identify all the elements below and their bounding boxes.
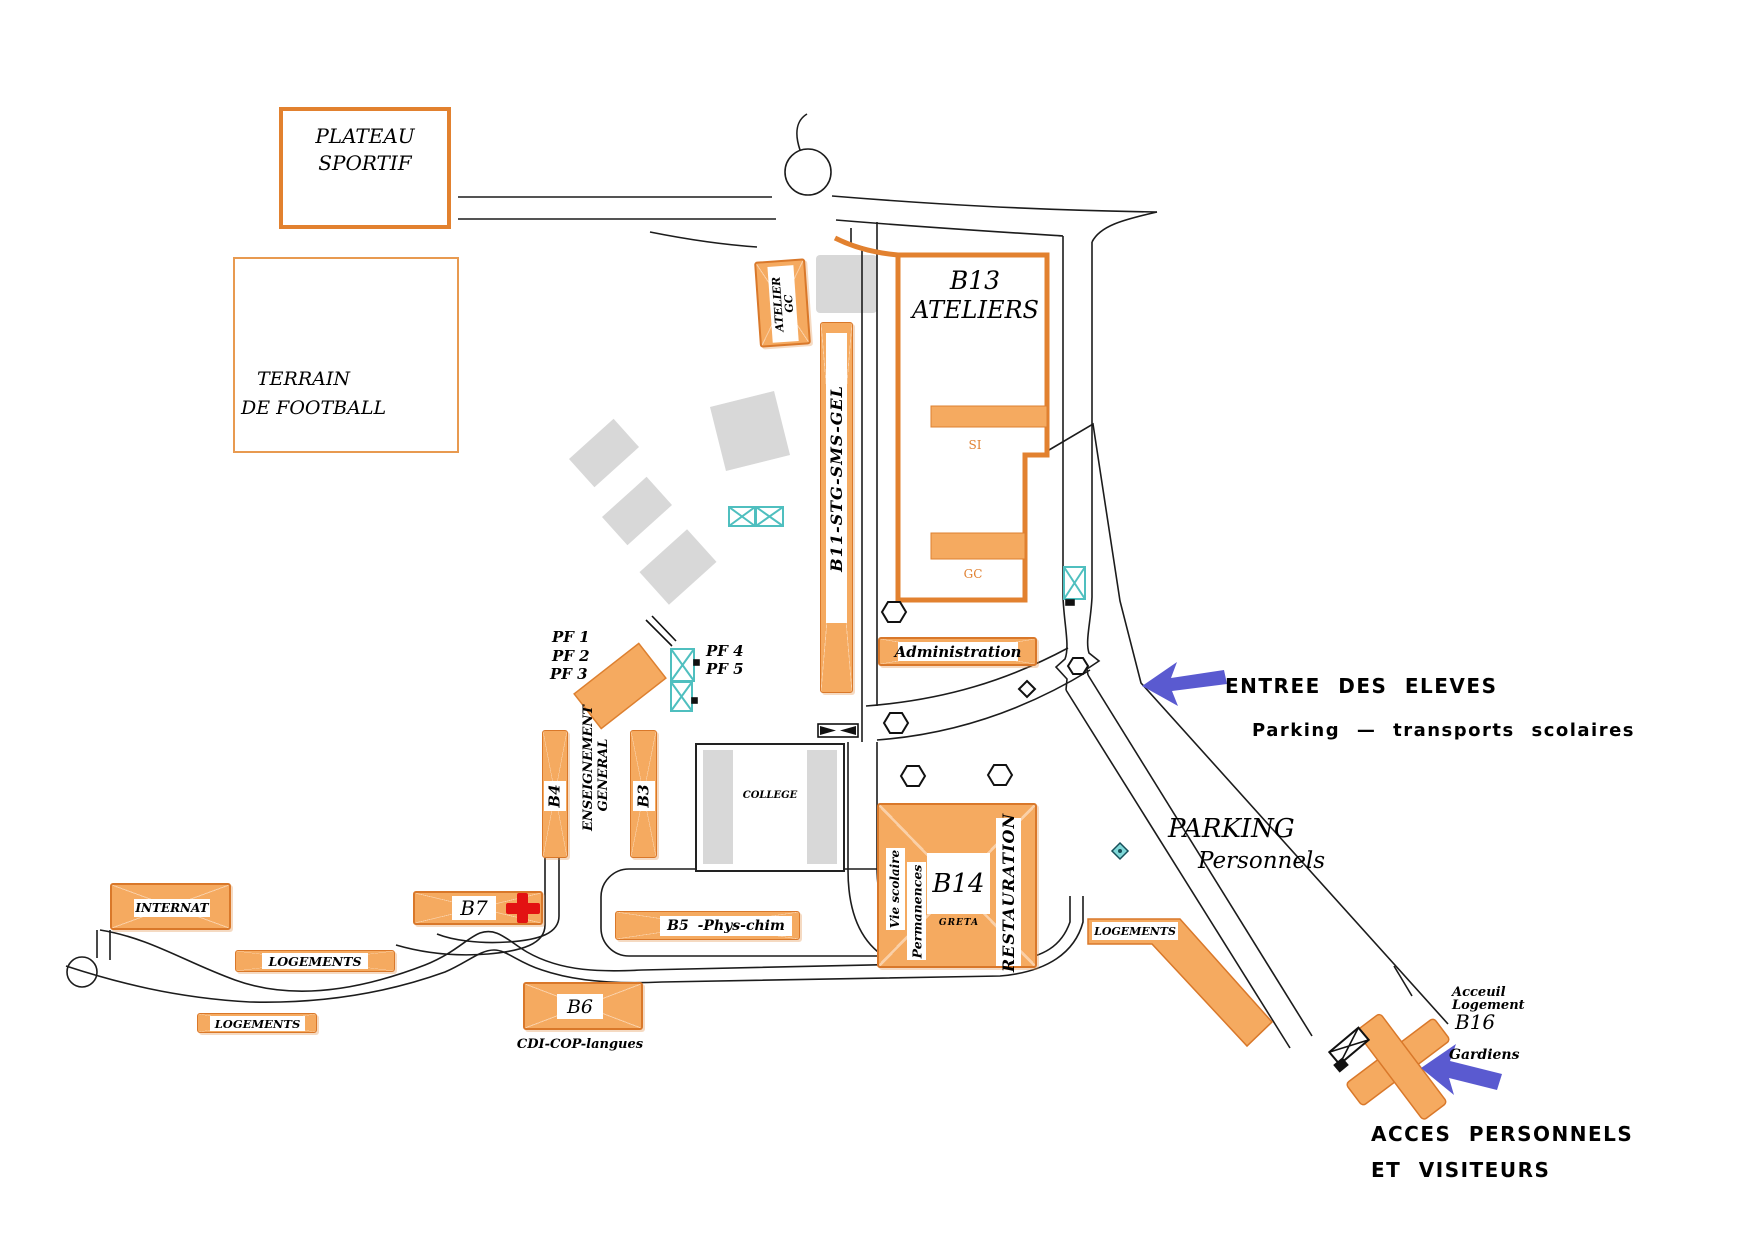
b16-label: B16 (1455, 1010, 1495, 1034)
college-wing-left (703, 750, 733, 864)
restauration-label: RESTAURATION (999, 812, 1018, 971)
administration-label: Administration (898, 642, 1018, 661)
terrain-football-zone: TERRAIN DE FOOTBALL (233, 257, 459, 453)
permanences-label: Permanences (909, 864, 924, 958)
pf5-label: PF 5 (706, 660, 744, 678)
plateau-sportif-label-1: PLATEAU (283, 123, 447, 150)
gate-icon-staff-entrance (1329, 1028, 1368, 1065)
students-entrance-label: ENTREE DES ELEVES (1225, 674, 1497, 698)
logements-west-1-label: LOGEMENTS (262, 953, 368, 969)
pf3-label: PF 3 (550, 665, 588, 683)
b13-type-label: ATELIERS (903, 296, 1048, 324)
first-aid-icon (506, 893, 540, 923)
logements-west-2-label: LOGEMENTS (210, 1016, 305, 1031)
diamond-marker-icon (1019, 681, 1035, 697)
roundabout (785, 149, 831, 195)
staff-entrance-label-2: ET VISITEURS (1371, 1158, 1550, 1182)
plateau-sportif-label-2: SPORTIF (283, 150, 447, 177)
parking-staff-label-2: Personnels (1198, 848, 1325, 874)
internat-building: INTERNAT (110, 883, 231, 930)
parking-staff-label-1: PARKING (1168, 814, 1295, 844)
logements-west-1-building: LOGEMENTS (235, 950, 395, 972)
b5-building: B5 -Phys-chim (615, 911, 800, 940)
greta-label: GRETA (931, 918, 987, 928)
college-label: COLLEGE (734, 790, 806, 801)
terrain-football-label-1: TERRAIN (241, 365, 386, 394)
pf2-label: PF 2 (552, 647, 590, 665)
b6-building: B6 (523, 982, 643, 1030)
b5-label: B5 -Phys-chim (660, 916, 792, 936)
b11-label: B11-STG-SMS-GEL (827, 385, 846, 572)
b6-caption: CDI-COP-langues (505, 1037, 655, 1052)
campus-map: PLATEAU SPORTIF TERRAIN DE FOOTBALL ATEL… (0, 0, 1754, 1239)
b6-label: B6 (557, 994, 603, 1019)
b3-building: B3 (630, 730, 657, 858)
college-building: COLLEGE (695, 743, 845, 872)
staff-entrance-label-1: ACCES PERSONNELS (1371, 1122, 1633, 1146)
vie-scolaire-label: Vie scolaire (889, 850, 903, 928)
pf4-label: PF 4 (706, 642, 744, 660)
enseignement-general-label: ENSEIGNEMENT GENERAL (581, 719, 611, 831)
b13-si-wing-label: SI (960, 438, 990, 452)
parking-marker-icon (1112, 843, 1128, 859)
plateau-sportif-zone: PLATEAU SPORTIF (279, 107, 451, 229)
b7-label: B7 (452, 896, 496, 920)
atelier-gc-building: ATELIER GC (754, 258, 811, 347)
administration-building: Administration (878, 637, 1037, 666)
pf1-label: PF 1 (552, 628, 590, 646)
road-network (66, 114, 1448, 1048)
b11-building: B11-STG-SMS-GEL (820, 322, 853, 693)
logements-west-2-building: LOGEMENTS (197, 1013, 317, 1033)
b16-annotation: Acceuil Logement (1452, 986, 1525, 1012)
gardiens-label: Gardiens (1449, 1047, 1519, 1063)
students-entrance-sublabel: Parking — transports scolaires (1252, 720, 1635, 741)
college-wing-right (807, 750, 837, 864)
hexagon-markers (882, 602, 1088, 786)
b14-building: Vie scolaire Permanences B14 GRETA RESTA… (877, 803, 1037, 968)
gate-icon-college (818, 724, 858, 737)
internat-label: INTERNAT (134, 899, 210, 917)
b4-label: B4 (546, 784, 564, 807)
logements-east-label: LOGEMENTS (1092, 922, 1178, 940)
b13-name: B13 (915, 266, 1035, 295)
b4-building: B4 (542, 730, 568, 858)
b3-label: B3 (635, 784, 653, 807)
terrain-football-label-2: DE FOOTBALL (241, 394, 386, 423)
b13-gc-wing-label: GC (958, 567, 988, 581)
b14-label: B14 (927, 853, 990, 914)
